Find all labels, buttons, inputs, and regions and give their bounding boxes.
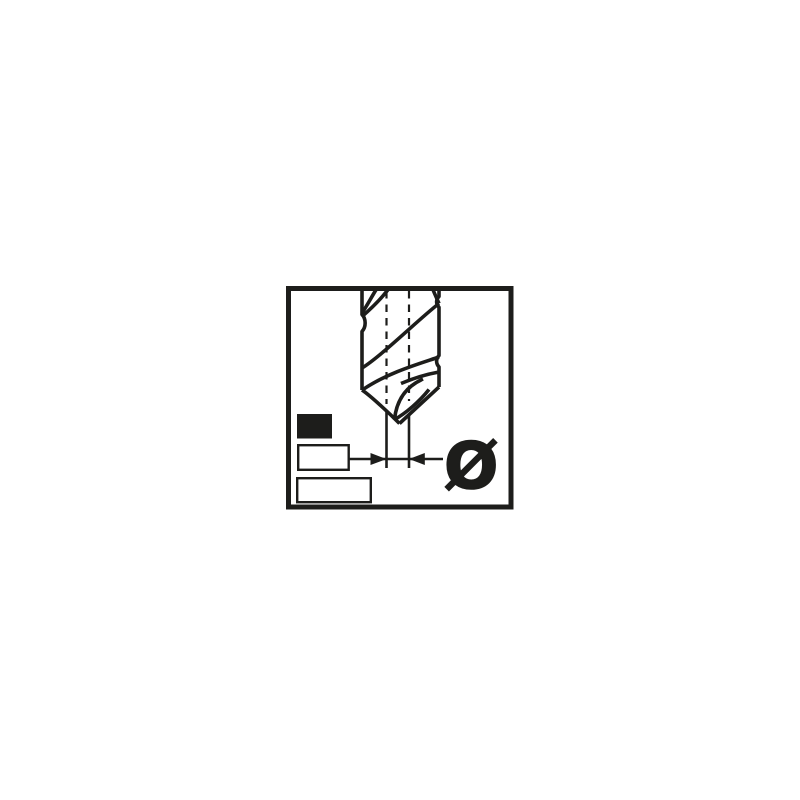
diameter-dimension-arrows-icon: [349, 453, 443, 465]
diameter-symbol: Ø: [444, 435, 498, 499]
twist-drill-icon: [362, 287, 439, 424]
drill-diameter-diagram: [0, 0, 800, 800]
filled-rectangle-swatch-icon: [297, 414, 332, 439]
outline-rectangle-swatch-icon: [298, 445, 349, 470]
product-pictogram-image: Ø: [0, 0, 800, 800]
outline-rectangle-swatch-icon: [297, 478, 371, 502]
